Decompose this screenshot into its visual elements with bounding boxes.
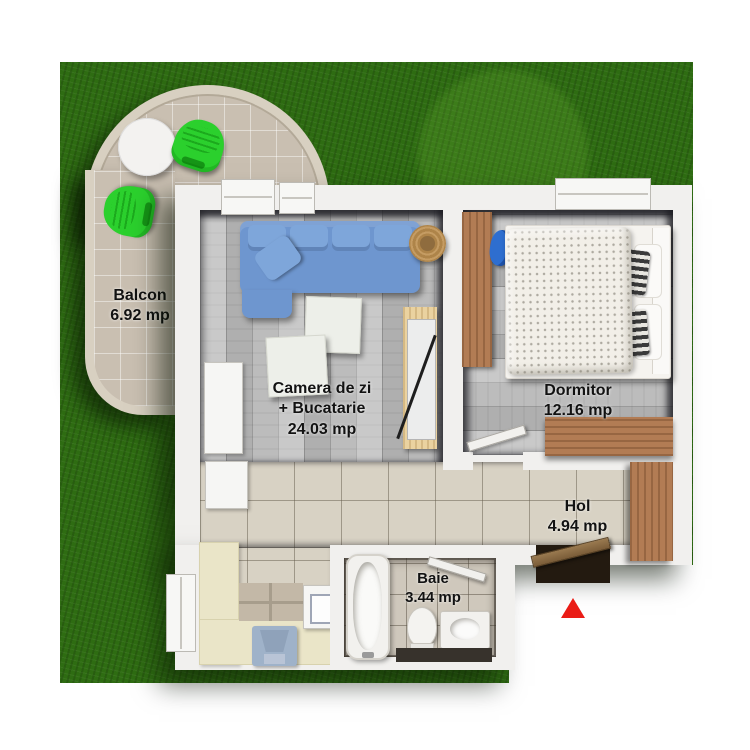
window-glass-line — [558, 193, 648, 195]
balcony-table — [118, 118, 176, 176]
dormitor-area: 12.16 mp — [508, 401, 648, 421]
sink-vanity — [440, 611, 490, 649]
basket-center — [420, 236, 435, 251]
toilet — [407, 607, 437, 647]
bathtub-faucet — [362, 652, 374, 658]
entrance-exterior-notch — [509, 565, 693, 687]
kitchen-dark-tiles — [239, 583, 303, 621]
kitchen-window — [166, 574, 196, 652]
fridge — [204, 362, 243, 454]
room-label-baie: Baie 3.44 mp — [373, 569, 493, 607]
hol-name: Hol — [520, 497, 635, 517]
living-name-line1: Camera de zi — [247, 379, 397, 399]
wall-bedroom-hall-left — [443, 452, 473, 470]
sofa-cushion — [290, 225, 328, 251]
living-name-line2: + Bucatarie — [247, 399, 397, 419]
hol-area: 4.94 mp — [520, 517, 635, 537]
sink-drainer — [264, 654, 285, 664]
tv-screen — [407, 319, 436, 440]
chair-stripes — [108, 189, 138, 231]
sofa-chaise — [242, 290, 292, 318]
room-label-living: Camera de zi + Bucatarie 24.03 mp — [247, 379, 397, 440]
living-area: 24.03 mp — [247, 420, 397, 440]
bathroom: Baie 3.44 mp — [330, 545, 510, 670]
hall-wardrobe — [630, 462, 673, 561]
sink-basin — [260, 630, 289, 652]
north-arrow-icon — [561, 598, 585, 618]
living-window — [221, 179, 275, 215]
baie-name: Baie — [373, 569, 493, 588]
bed-duvet — [505, 227, 634, 375]
chair-stripes — [179, 122, 223, 157]
balcony-door — [279, 182, 315, 214]
window-glass-line — [224, 196, 272, 198]
sofa-cushion — [374, 225, 412, 251]
bathroom-counter — [396, 648, 492, 662]
window-glass-line — [180, 577, 182, 649]
chair-handle — [142, 202, 153, 227]
dormitor-name: Dormitor — [508, 381, 648, 401]
baie-area: 3.44 mp — [373, 588, 493, 607]
bedroom-window — [555, 178, 651, 210]
bedroom-desk — [462, 212, 492, 367]
floor-plan-canvas: Balcon 6.92 mp Camera de zi + — [0, 0, 750, 750]
bed — [505, 225, 671, 379]
sink-bowl — [450, 618, 480, 640]
kitchen-tall-cabinet — [205, 461, 248, 509]
sofa-cushion — [332, 225, 370, 251]
window-glass-line — [282, 197, 312, 199]
room-label-hol: Hol 4.94 mp — [520, 497, 635, 538]
rattan-basket — [409, 225, 446, 262]
bedroom-wardrobe — [545, 417, 673, 456]
kitchen-sink — [252, 626, 297, 666]
room-label-dormitor: Dormitor 12.16 mp — [508, 381, 648, 422]
